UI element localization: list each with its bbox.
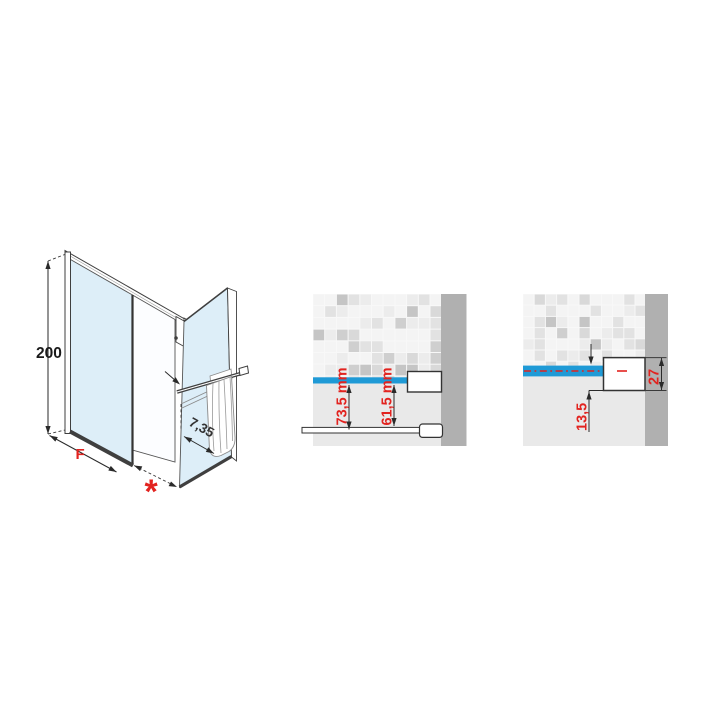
- wall-tile: [325, 306, 336, 317]
- wall-tile: [431, 306, 442, 317]
- wall-tile: [325, 341, 336, 352]
- wall-tile: [372, 318, 383, 329]
- wall-tile: [636, 339, 646, 349]
- wall-tile: [384, 295, 395, 306]
- wall-tile: [360, 306, 371, 317]
- wall-tile: [546, 351, 556, 361]
- wall-tile: [636, 328, 646, 338]
- wall-tile: [535, 306, 545, 316]
- wall-tile: [580, 339, 590, 349]
- wall-tile: [419, 341, 430, 352]
- wall-tile: [557, 317, 567, 327]
- wall-tile: [568, 351, 578, 361]
- wall-tile: [524, 317, 534, 327]
- wall-tile: [524, 306, 534, 316]
- wall-tile: [395, 306, 406, 317]
- wall-tile: [613, 295, 623, 305]
- wall-tile: [591, 295, 601, 305]
- isometric-shower-diagram: 200: [36, 251, 249, 512]
- arrowhead-icon: [45, 261, 50, 269]
- wall-tile: [314, 295, 325, 306]
- wall-tile: [636, 317, 646, 327]
- wall-profile-left: [65, 252, 71, 434]
- wall-tile: [360, 318, 371, 329]
- wall-tile: [624, 328, 634, 338]
- wall-tile: [557, 306, 567, 316]
- wall-tile: [524, 295, 534, 305]
- wall-tile: [602, 339, 612, 349]
- wall-tile: [624, 295, 634, 305]
- wall-tile: [325, 330, 336, 341]
- wall-tile: [431, 295, 442, 306]
- wall-tile: [546, 328, 556, 338]
- wall-tile: [419, 318, 430, 329]
- wall-tile: [360, 353, 371, 364]
- wall-tile: [395, 353, 406, 364]
- towel-rail-end-cap: [239, 366, 249, 376]
- wall-tile: [557, 351, 567, 361]
- wall-tile: [431, 353, 442, 364]
- dimension-73-5: 73,5 mm: [335, 367, 352, 429]
- height-dim-label: 200: [36, 345, 62, 362]
- wall-tile: [524, 351, 534, 361]
- wall-tile: [314, 341, 325, 352]
- wall-tile: [384, 318, 395, 329]
- wall-tile: [360, 330, 371, 341]
- wall-tile: [407, 341, 418, 352]
- wall-tile: [314, 353, 325, 364]
- wall-tile: [591, 306, 601, 316]
- wall-tile: [613, 339, 623, 349]
- wall-to-glass-label: 73,5 mm: [335, 367, 351, 425]
- wall-tile: [407, 318, 418, 329]
- front-panel-assembly: [65, 251, 189, 466]
- wall-tile: [591, 328, 601, 338]
- wall-tile: [602, 295, 612, 305]
- arrowhead-icon: [134, 466, 142, 472]
- wall-tile: [524, 339, 534, 349]
- panel-bottom-section: [302, 427, 420, 433]
- wall-tile: [419, 330, 430, 341]
- wall-tile: [580, 317, 590, 327]
- wall-tile: [535, 339, 545, 349]
- wall-tile: [624, 306, 634, 316]
- arrowhead-icon: [45, 426, 50, 434]
- wall-tile: [395, 295, 406, 306]
- wall-tile: [407, 353, 418, 364]
- wall-tile: [314, 365, 325, 376]
- adjustment-asterisk-label: *: [145, 473, 159, 511]
- wall-tile: [624, 339, 634, 349]
- wall-tile: [546, 306, 556, 316]
- wall-tile: [325, 353, 336, 364]
- wall-tile: [636, 306, 646, 316]
- wall-tile: [535, 295, 545, 305]
- wall-tile: [624, 317, 634, 327]
- wall-tile: [384, 306, 395, 317]
- wall-tile: [431, 330, 442, 341]
- technical-drawing-canvas: 200: [0, 0, 720, 720]
- technical-drawing-page: 200: [0, 0, 720, 720]
- wall-tile: [546, 295, 556, 305]
- wall-tile: [325, 295, 336, 306]
- wall-tile: [337, 318, 348, 329]
- fixing-screw-icon: [174, 336, 178, 340]
- wall-tile: [372, 341, 383, 352]
- wall-tile: [360, 341, 371, 352]
- wall-tile: [431, 318, 442, 329]
- wall-tile: [557, 328, 567, 338]
- wall-tile: [337, 295, 348, 306]
- wall-tile: [591, 317, 601, 327]
- wall-tile: [395, 330, 406, 341]
- wall-dark-band: [441, 294, 467, 446]
- wall-tile: [360, 365, 371, 376]
- wall-tile: [613, 306, 623, 316]
- wall-tile: [568, 317, 578, 327]
- wall-tile: [613, 317, 623, 327]
- wall-tile: [431, 341, 442, 352]
- wall-tile: [580, 351, 590, 361]
- wall-tile: [349, 353, 360, 364]
- wall-tile: [568, 328, 578, 338]
- wall-tile: [395, 341, 406, 352]
- wall-section-detail-2: 13,5 27: [523, 294, 668, 446]
- wall-tile: [372, 330, 383, 341]
- wall-tile: [419, 295, 430, 306]
- width-dim-label: F: [76, 446, 85, 463]
- wall-tile: [372, 306, 383, 317]
- wall-tile: [349, 318, 360, 329]
- wall-tile: [372, 295, 383, 306]
- wall-tile: [349, 306, 360, 317]
- wall-tile: [384, 330, 395, 341]
- wall-tile: [337, 353, 348, 364]
- wall-tile: [314, 318, 325, 329]
- wall-tile: [568, 339, 578, 349]
- glass-recess-label: 13,5: [575, 403, 591, 431]
- fixed-glass-panel: [71, 260, 133, 465]
- sliding-door-panel: [133, 295, 176, 462]
- wall-tile: [524, 328, 534, 338]
- wall-tile: [580, 295, 590, 305]
- wall-tile: [407, 306, 418, 317]
- wall-tile: [337, 341, 348, 352]
- wall-tile: [419, 353, 430, 364]
- arrowhead-icon: [169, 482, 177, 488]
- wall-to-panel-label: 61,5 mm: [380, 367, 396, 425]
- wall-tile: [314, 306, 325, 317]
- wall-tile: [602, 317, 612, 327]
- wall-tile: [419, 306, 430, 317]
- wall-tile: [384, 341, 395, 352]
- wall-tile: [395, 365, 406, 376]
- wall-tile: [546, 339, 556, 349]
- wall-tile: [349, 295, 360, 306]
- wall-section-detail-1: 73,5 mm 61,5 mm: [302, 294, 467, 446]
- profile-depth-label: 27: [647, 369, 663, 385]
- wall-tile: [535, 351, 545, 361]
- dimension-61-5: 61,5 mm: [380, 367, 397, 426]
- wall-tile: [580, 328, 590, 338]
- wall-tile: [325, 318, 336, 329]
- wall-tile: [613, 328, 623, 338]
- wall-tile: [349, 330, 360, 341]
- height-dimension: 200: [36, 254, 67, 434]
- wall-tile: [546, 317, 556, 327]
- wall-tile: [557, 339, 567, 349]
- wall-tile: [337, 330, 348, 341]
- wall-tile: [395, 318, 406, 329]
- wall-tile: [557, 295, 567, 305]
- wall-tile: [602, 306, 612, 316]
- wall-tile: [337, 306, 348, 317]
- wall-tile: [407, 295, 418, 306]
- wall-profile-section: [604, 358, 646, 391]
- wall-tile: [384, 353, 395, 364]
- wall-tile: [535, 328, 545, 338]
- wall-tile: [372, 353, 383, 364]
- wall-tile: [360, 295, 371, 306]
- panel-end-cap-section: [420, 424, 443, 437]
- arrowhead-icon: [50, 436, 58, 442]
- wall-tile: [636, 295, 646, 305]
- wall-profile-section: [408, 372, 442, 393]
- wall-tile: [602, 328, 612, 338]
- arrowhead-icon: [108, 466, 116, 472]
- wall-tile: [314, 330, 325, 341]
- adjustment-dimension: *: [134, 466, 177, 512]
- wall-tile: [407, 330, 418, 341]
- wall-tile: [535, 317, 545, 327]
- wall-tile: [591, 339, 601, 349]
- wall-tile: [568, 306, 578, 316]
- wall-tile: [349, 341, 360, 352]
- wall-tile: [580, 306, 590, 316]
- wall-tile: [568, 295, 578, 305]
